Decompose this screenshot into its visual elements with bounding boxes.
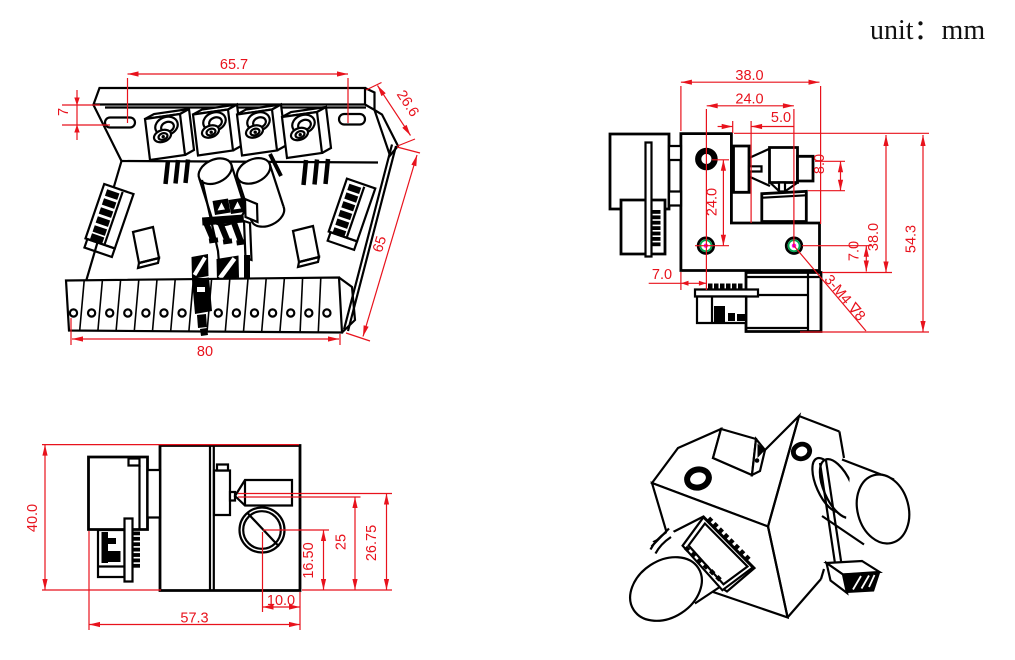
svg-text:8.0: 8.0 [812, 154, 828, 174]
svg-text:24.0: 24.0 [705, 188, 721, 216]
svg-text:7.0: 7.0 [847, 241, 863, 261]
svg-text:54.3: 54.3 [904, 225, 920, 253]
svg-text:57.3: 57.3 [180, 611, 208, 627]
svg-text:26.75: 26.75 [364, 525, 380, 561]
svg-text:7: 7 [56, 108, 72, 116]
svg-text:unit：mm: unit：mm [870, 15, 985, 46]
svg-text:10.0: 10.0 [267, 593, 295, 609]
svg-text:80: 80 [197, 344, 213, 360]
svg-text:7.0: 7.0 [652, 267, 672, 283]
svg-text:16.50: 16.50 [301, 542, 317, 578]
svg-text:65: 65 [370, 234, 390, 254]
svg-text:38.0: 38.0 [866, 223, 882, 251]
svg-text:24.0: 24.0 [735, 92, 763, 108]
svg-text:5.0: 5.0 [771, 110, 791, 126]
svg-text:40.0: 40.0 [25, 504, 41, 532]
svg-text:65.7: 65.7 [220, 57, 248, 73]
svg-text:38.0: 38.0 [735, 68, 763, 84]
svg-text:25: 25 [334, 534, 350, 550]
svg-text:3-M4 ∇8: 3-M4 ∇8 [821, 272, 868, 324]
